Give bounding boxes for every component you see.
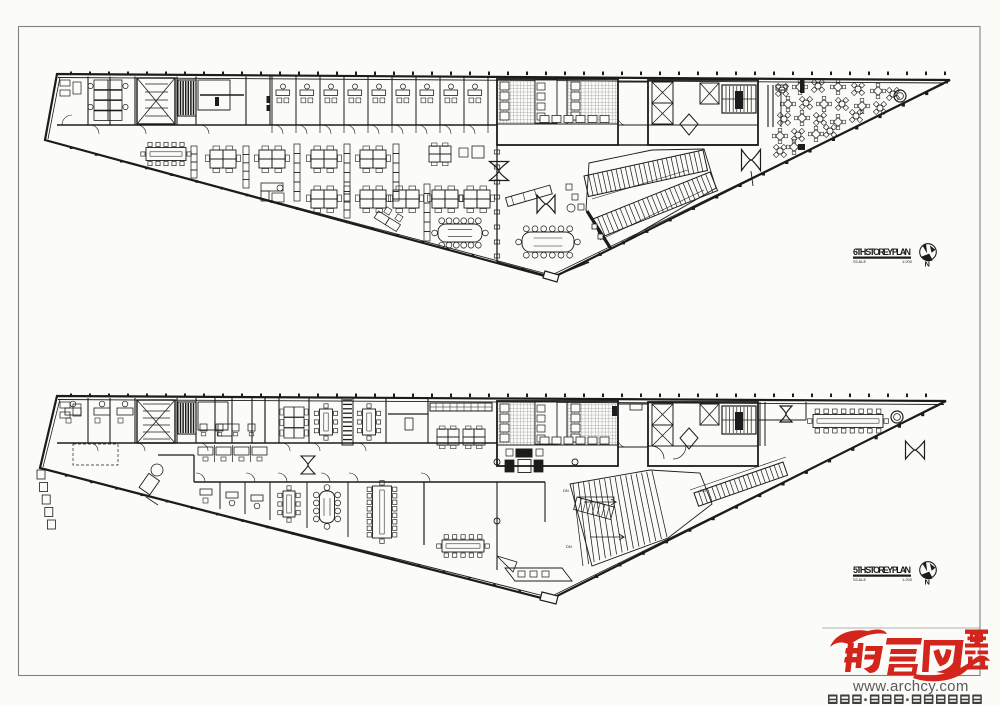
svg-text:N: N <box>925 578 930 587</box>
svg-text:DN: DN <box>563 488 569 493</box>
svg-text:SCALE: SCALE <box>853 259 866 264</box>
svg-text:SCALE: SCALE <box>853 577 866 582</box>
svg-text:5TH STOREY PLAN: 5TH STOREY PLAN <box>853 565 911 575</box>
svg-text:www.archcy.com: www.archcy.com <box>852 678 969 695</box>
svg-text:1:200: 1:200 <box>902 577 913 582</box>
svg-text:1:200: 1:200 <box>902 259 913 264</box>
svg-text:6TH STOREY PLAN: 6TH STOREY PLAN <box>853 247 911 257</box>
svg-text:DN: DN <box>566 544 572 549</box>
svg-text:N: N <box>925 260 930 269</box>
